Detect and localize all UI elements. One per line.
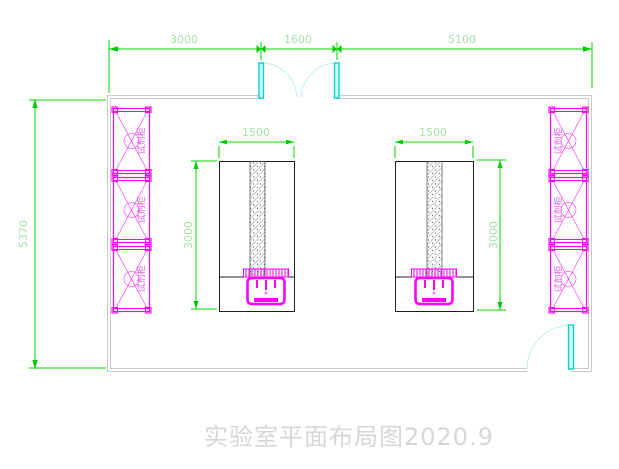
- door-leaf: [335, 63, 340, 98]
- cabinet-column-left: 试剂柜 试剂柜 试剂柜: [112, 107, 151, 313]
- cabinet-label: 试剂柜: [136, 127, 148, 154]
- floor-plan-svg: 试剂柜 试剂柜 试剂柜 试剂柜 试剂柜 试剂柜 30: [0, 0, 619, 469]
- dim-top-middle: 1600: [284, 33, 312, 46]
- drawing-title: 实验室平面布局图2020.9: [204, 423, 494, 451]
- door-leaf: [569, 325, 574, 369]
- sink: [244, 269, 289, 304]
- door-swing-arc: [261, 63, 297, 97]
- room-walls: [108, 93, 592, 373]
- sink: [412, 269, 457, 304]
- dimension-top: 3000 1600 5100: [109, 33, 592, 93]
- bottom-door-opening: [527, 364, 571, 373]
- double-door-top: [259, 63, 339, 98]
- cad-canvas: 试剂柜 试剂柜 试剂柜 试剂柜 试剂柜 试剂柜 30: [0, 0, 619, 469]
- dim-top-right: 5100: [448, 33, 476, 46]
- dimension-left-height: 5370: [17, 99, 106, 369]
- bench-center-strip: [250, 162, 265, 278]
- lab-bench-right: [396, 162, 474, 312]
- dim-bench-left-width: 1500: [242, 126, 270, 139]
- lab-bench-left: [220, 162, 295, 312]
- cabinet-column-right: 试剂柜 试剂柜 试剂柜: [549, 107, 588, 313]
- dim-bench-right-depth: 3000: [487, 221, 500, 249]
- cabinet-label: 试剂柜: [136, 265, 148, 292]
- top-door-opening: [260, 93, 336, 101]
- door-swing-arc: [527, 325, 571, 369]
- dim-left-height: 5370: [17, 220, 30, 248]
- bench-center-strip: [427, 162, 442, 278]
- cabinet-label: 试剂柜: [553, 127, 565, 154]
- dim-bench-left-depth: 3000: [182, 221, 195, 249]
- cabinet-label: 试剂柜: [553, 196, 565, 223]
- cabinet-label: 试剂柜: [553, 265, 565, 292]
- door-bottom-right: [527, 325, 574, 369]
- cabinet-label: 试剂柜: [136, 196, 148, 223]
- door-leaf: [259, 63, 264, 98]
- door-swing-arc: [301, 63, 337, 97]
- dim-bench-right-width: 1500: [419, 126, 447, 139]
- dim-top-left: 3000: [170, 33, 198, 46]
